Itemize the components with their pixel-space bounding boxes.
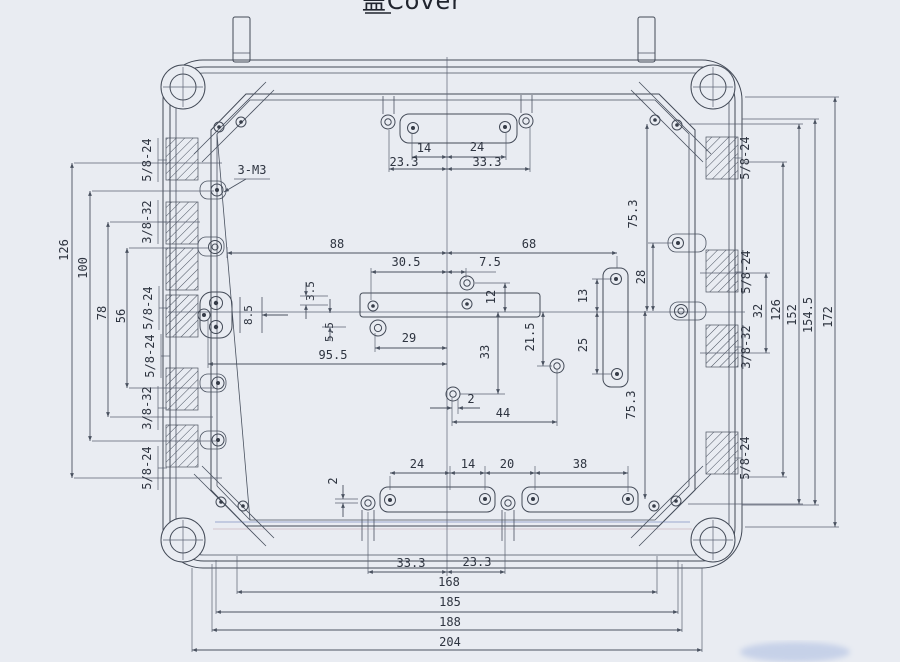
dim-35: 3.5 <box>304 281 317 301</box>
dim-top-333: 33.3 <box>473 155 502 169</box>
dim-44: 44 <box>496 406 510 420</box>
dim-top-14: 14 <box>417 141 431 155</box>
dim-right-32: 32 <box>751 304 765 318</box>
thread-left-3: 5/8-24 <box>141 286 155 329</box>
hinge-tabs <box>233 17 655 62</box>
corner-lug-bottom-left <box>161 466 274 562</box>
dim-left-56: 56 <box>114 309 128 323</box>
dim-85: 8.5 <box>242 305 255 325</box>
dim-13: 13 <box>576 289 590 303</box>
right-vertical-slot <box>603 268 628 387</box>
dim-185: 185 <box>439 595 461 609</box>
dim-2-center: 2 <box>467 392 474 406</box>
thread-right-4: 5/8-24 <box>738 436 752 479</box>
callout-3m3: 3-M3 <box>238 163 267 177</box>
dim-188: 188 <box>439 615 461 629</box>
dim-55: 5.5 <box>323 322 336 342</box>
thread-left-5: 3/8-32 <box>140 386 154 429</box>
dim-bottom-333: 33.3 <box>397 556 426 570</box>
dim-left-126: 126 <box>57 239 71 261</box>
drawing-sheet: 盖Cover 3-M3 14 24 23.3 33.3 88 68 30.5 7… <box>0 0 900 662</box>
thread-right-2: 5/8-24 <box>739 250 753 293</box>
dim-29: 29 <box>402 331 416 345</box>
dim-bottom-38: 38 <box>573 457 587 471</box>
cover-engineering-drawing: 盖Cover 3-M3 14 24 23.3 33.3 88 68 30.5 7… <box>0 0 900 662</box>
dim-305: 30.5 <box>392 255 421 269</box>
dim-right-152: 152 <box>785 304 799 326</box>
thread-left-4: 5/8-24 <box>143 334 157 377</box>
corner-lug-bottom-right <box>631 466 735 562</box>
dim-right-126: 126 <box>769 299 783 321</box>
dim-bottom-20: 20 <box>500 457 514 471</box>
dim-bottom-24: 24 <box>410 457 424 471</box>
dim-168: 168 <box>438 575 460 589</box>
dim-right-1545: 154.5 <box>801 297 815 333</box>
dim-12: 12 <box>484 290 498 304</box>
dim-right-172: 172 <box>821 306 835 328</box>
thread-right-3: 3/8-32 <box>739 325 753 368</box>
dim-left-100: 100 <box>76 257 90 279</box>
dim-753-upper: 75.3 <box>626 200 640 229</box>
thread-left-6: 5/8-24 <box>140 446 154 489</box>
dim-bottom-14: 14 <box>461 457 475 471</box>
right-wall-bosses <box>668 234 706 320</box>
dim-215: 21.5 <box>523 323 537 352</box>
dim-204: 204 <box>439 635 461 649</box>
dim-68: 68 <box>522 237 536 251</box>
dim-top-233: 23.3 <box>390 155 419 169</box>
dim-753-lower: 75.3 <box>624 391 638 420</box>
dim-28: 28 <box>634 270 648 284</box>
dim-bottom-233: 23.3 <box>463 555 492 569</box>
scan-smudge <box>740 642 850 662</box>
thread-left-2: 3/8-32 <box>140 200 154 243</box>
dim-left-78: 78 <box>95 306 109 320</box>
dim-top-24: 24 <box>470 140 484 154</box>
dim-25: 25 <box>576 338 590 352</box>
dim-33: 33 <box>478 345 492 359</box>
dim-88: 88 <box>330 237 344 251</box>
thread-right-1: 5/8-24 <box>738 136 752 179</box>
dim-bottom-2: 2 <box>326 477 340 484</box>
thread-left-1: 5/8-24 <box>140 138 154 181</box>
dim-75: 7.5 <box>479 255 501 269</box>
dim-955: 95.5 <box>319 348 348 362</box>
bottom-slots <box>361 487 638 541</box>
top-slot <box>381 95 533 143</box>
